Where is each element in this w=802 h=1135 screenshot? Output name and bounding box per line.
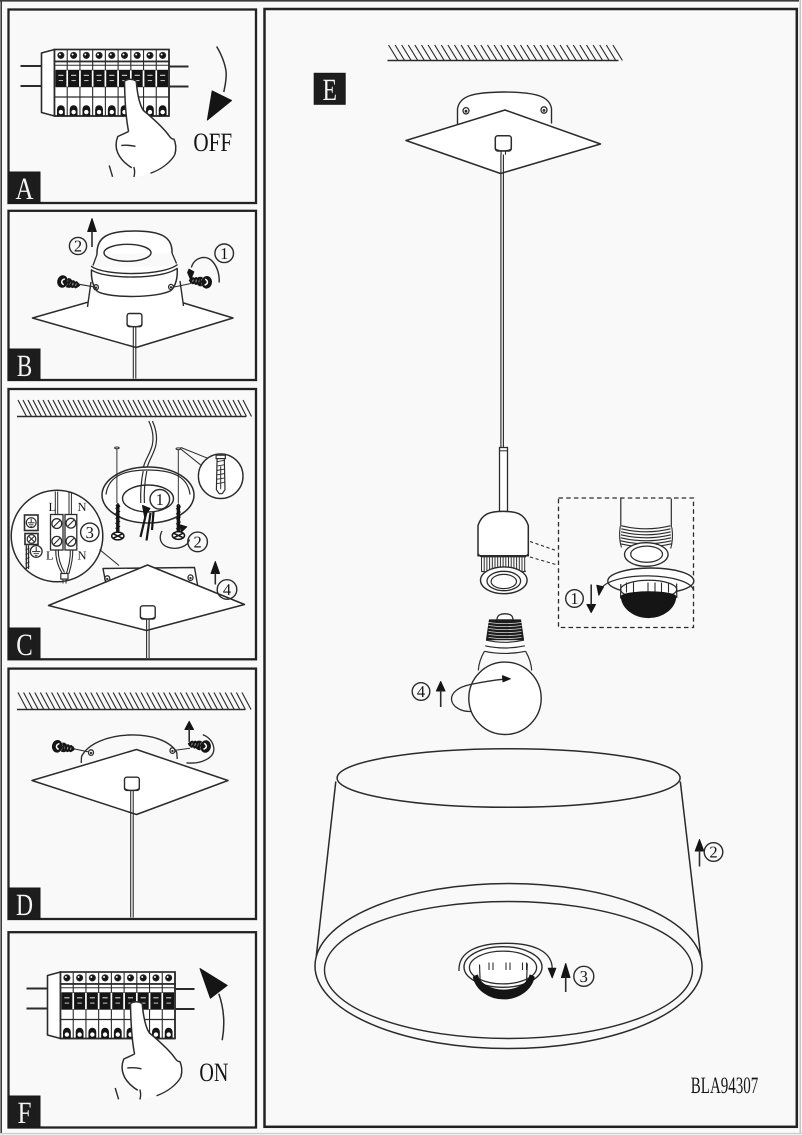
svg-text:L: L bbox=[46, 549, 54, 563]
svg-text:4: 4 bbox=[417, 682, 425, 701]
svg-text:D: D bbox=[16, 887, 33, 922]
svg-text:1: 1 bbox=[156, 490, 164, 509]
svg-text:4: 4 bbox=[223, 580, 231, 599]
svg-text:ON: ON bbox=[199, 1057, 228, 1087]
svg-text:F: F bbox=[18, 1095, 32, 1130]
svg-text:N: N bbox=[78, 500, 87, 514]
svg-text:1: 1 bbox=[220, 244, 228, 263]
svg-text:N: N bbox=[78, 549, 87, 563]
svg-text:3: 3 bbox=[86, 523, 94, 542]
svg-text:L: L bbox=[49, 500, 57, 514]
svg-text:C: C bbox=[16, 627, 33, 662]
svg-text:2: 2 bbox=[74, 237, 82, 256]
svg-text:2: 2 bbox=[193, 533, 201, 552]
svg-text:B: B bbox=[17, 348, 33, 383]
svg-text:1: 1 bbox=[570, 589, 578, 608]
svg-text:OFF: OFF bbox=[193, 127, 232, 157]
svg-text:BLA94307: BLA94307 bbox=[691, 1073, 759, 1099]
svg-text:2: 2 bbox=[709, 843, 717, 862]
svg-text:3: 3 bbox=[580, 967, 588, 986]
svg-text:E: E bbox=[322, 72, 337, 107]
svg-text:A: A bbox=[16, 171, 34, 206]
